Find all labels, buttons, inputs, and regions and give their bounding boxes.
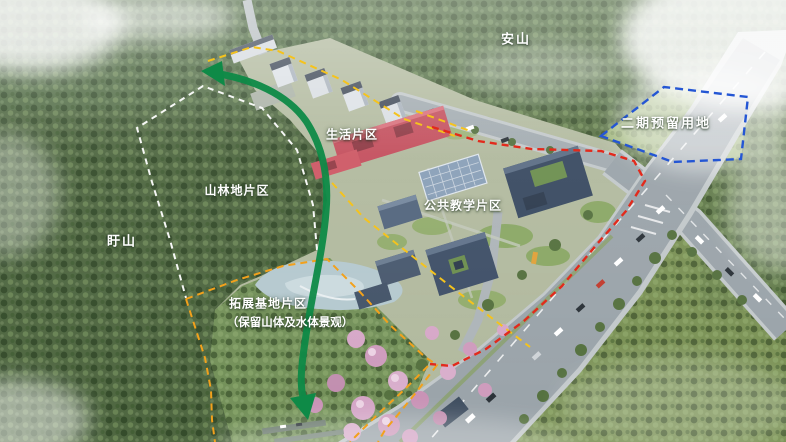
masterplan-image: 安山 盱山 二期预留用地 生活片区 山林地片区 公共教学片区 拓展基地片区 （保… xyxy=(0,0,786,442)
atmosphere-haze xyxy=(0,0,786,442)
scene-rendering xyxy=(0,0,786,442)
